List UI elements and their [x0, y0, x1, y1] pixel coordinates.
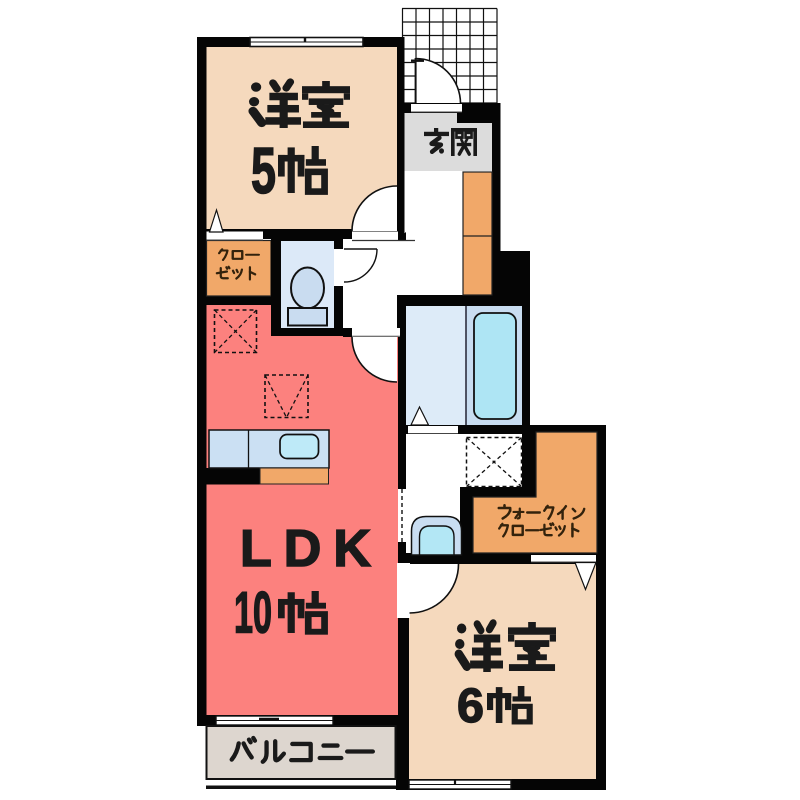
svg-text:10: 10: [234, 581, 272, 646]
svg-text:5: 5: [251, 134, 276, 207]
svg-text:6: 6: [457, 680, 484, 733]
svg-text:LDK: LDK: [240, 520, 383, 578]
